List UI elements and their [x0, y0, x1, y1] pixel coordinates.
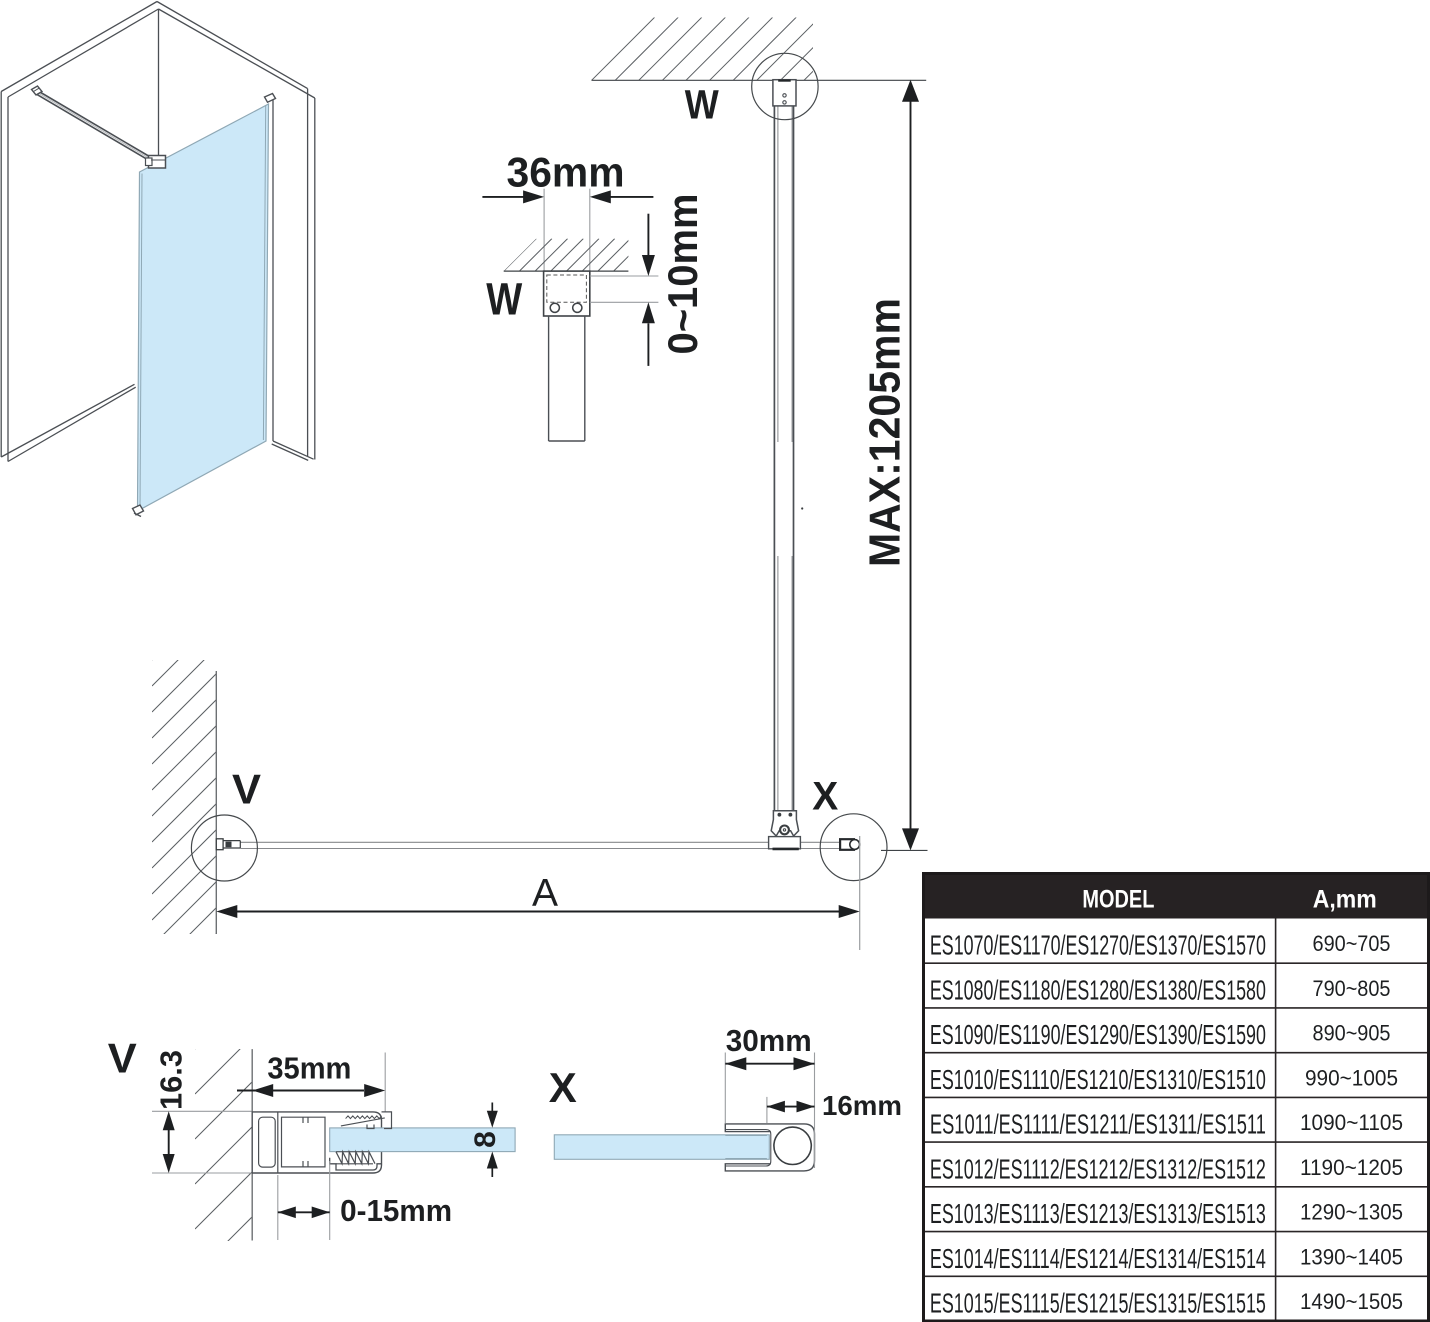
svg-text:W: W: [685, 82, 719, 128]
svg-text:V: V: [232, 765, 261, 812]
svg-text:1090~1105: 1090~1105: [1300, 1110, 1403, 1135]
svg-text:35mm: 35mm: [267, 1050, 351, 1085]
svg-text:X: X: [549, 1064, 577, 1111]
svg-text:790~805: 790~805: [1313, 976, 1391, 1001]
svg-text:V: V: [108, 1035, 137, 1082]
svg-text:0~10mm: 0~10mm: [659, 194, 706, 355]
svg-text:X: X: [812, 775, 838, 819]
svg-text:890~905: 890~905: [1313, 1021, 1391, 1046]
svg-text:W: W: [486, 274, 522, 325]
svg-text:1390~1405: 1390~1405: [1300, 1244, 1403, 1269]
svg-text:990~1005: 990~1005: [1305, 1065, 1398, 1090]
svg-text:1490~1505: 1490~1505: [1300, 1289, 1403, 1314]
svg-text:16mm: 16mm: [822, 1090, 902, 1121]
svg-text:8: 8: [469, 1131, 502, 1148]
svg-text:MODEL: MODEL: [1082, 886, 1154, 914]
svg-text:1190~1205: 1190~1205: [1300, 1155, 1403, 1180]
svg-text:ES1013/ES1113/ES1213/ES1313/ES: ES1013/ES1113/ES1213/ES1313/ES1513: [930, 1198, 1266, 1229]
svg-text:1290~1305: 1290~1305: [1300, 1200, 1403, 1225]
svg-text:ES1010/ES1110/ES1210/ES1310/ES: ES1010/ES1110/ES1210/ES1310/ES1510: [930, 1064, 1266, 1095]
svg-text:ES1070/ES1170/ES1270/ES1370/ES: ES1070/ES1170/ES1270/ES1370/ES1570: [930, 930, 1266, 961]
svg-text:690~705: 690~705: [1313, 931, 1391, 956]
svg-text:ES1011/ES1111/ES1211/ES1311/ES: ES1011/ES1111/ES1211/ES1311/ES1511: [930, 1109, 1266, 1140]
svg-text:0-15mm: 0-15mm: [340, 1193, 452, 1228]
svg-text:ES1012/ES1112/ES1212/ES1312/ES: ES1012/ES1112/ES1212/ES1312/ES1512: [930, 1153, 1266, 1184]
svg-text:A,mm: A,mm: [1313, 886, 1377, 914]
svg-text:A: A: [532, 872, 558, 915]
svg-text:MAX:1205mm: MAX:1205mm: [861, 298, 910, 567]
svg-text:30mm: 30mm: [726, 1023, 812, 1058]
svg-text:ES1090/ES1190/ES1290/ES1390/ES: ES1090/ES1190/ES1290/ES1390/ES1590: [930, 1019, 1266, 1050]
svg-text:36mm: 36mm: [507, 149, 625, 196]
svg-text:ES1080/ES1180/ES1280/ES1380/ES: ES1080/ES1180/ES1280/ES1380/ES1580: [930, 974, 1266, 1005]
svg-text:ES1014/ES1114/ES1214/ES1314/ES: ES1014/ES1114/ES1214/ES1314/ES1514: [930, 1243, 1266, 1274]
svg-text:16.3: 16.3: [154, 1050, 189, 1110]
svg-text:ES1015/ES1115/ES1215/ES1315/ES: ES1015/ES1115/ES1215/ES1315/ES1515: [930, 1288, 1266, 1319]
